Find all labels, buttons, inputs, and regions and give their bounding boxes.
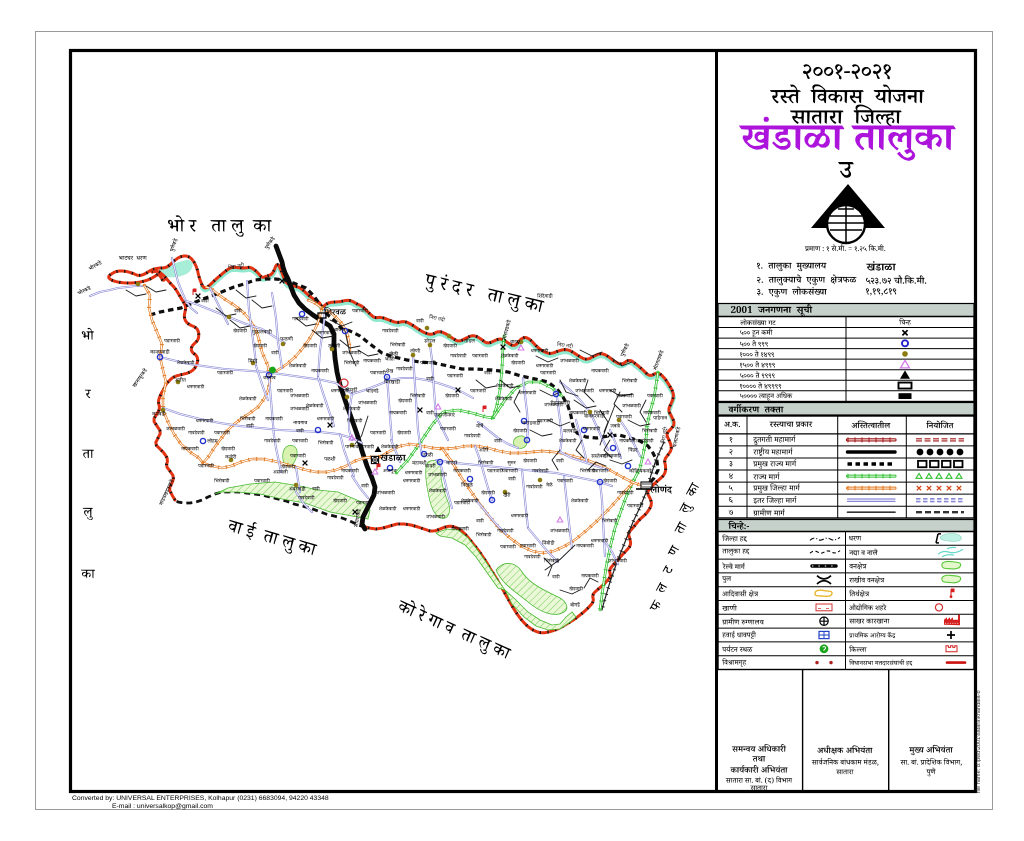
svg-text:file name: d:\pwd\2001\satara\: file name: d:\pwd\2001\satara\khandala-b (976, 690, 982, 793)
svg-text:E-mail : universalkop@gmail.co: E-mail : universalkop@gmail.com (112, 803, 213, 810)
svg-text:Converted by: UNIVERSAL ENTERP: Converted by: UNIVERSAL ENTERPRISES, Kol… (72, 795, 329, 802)
